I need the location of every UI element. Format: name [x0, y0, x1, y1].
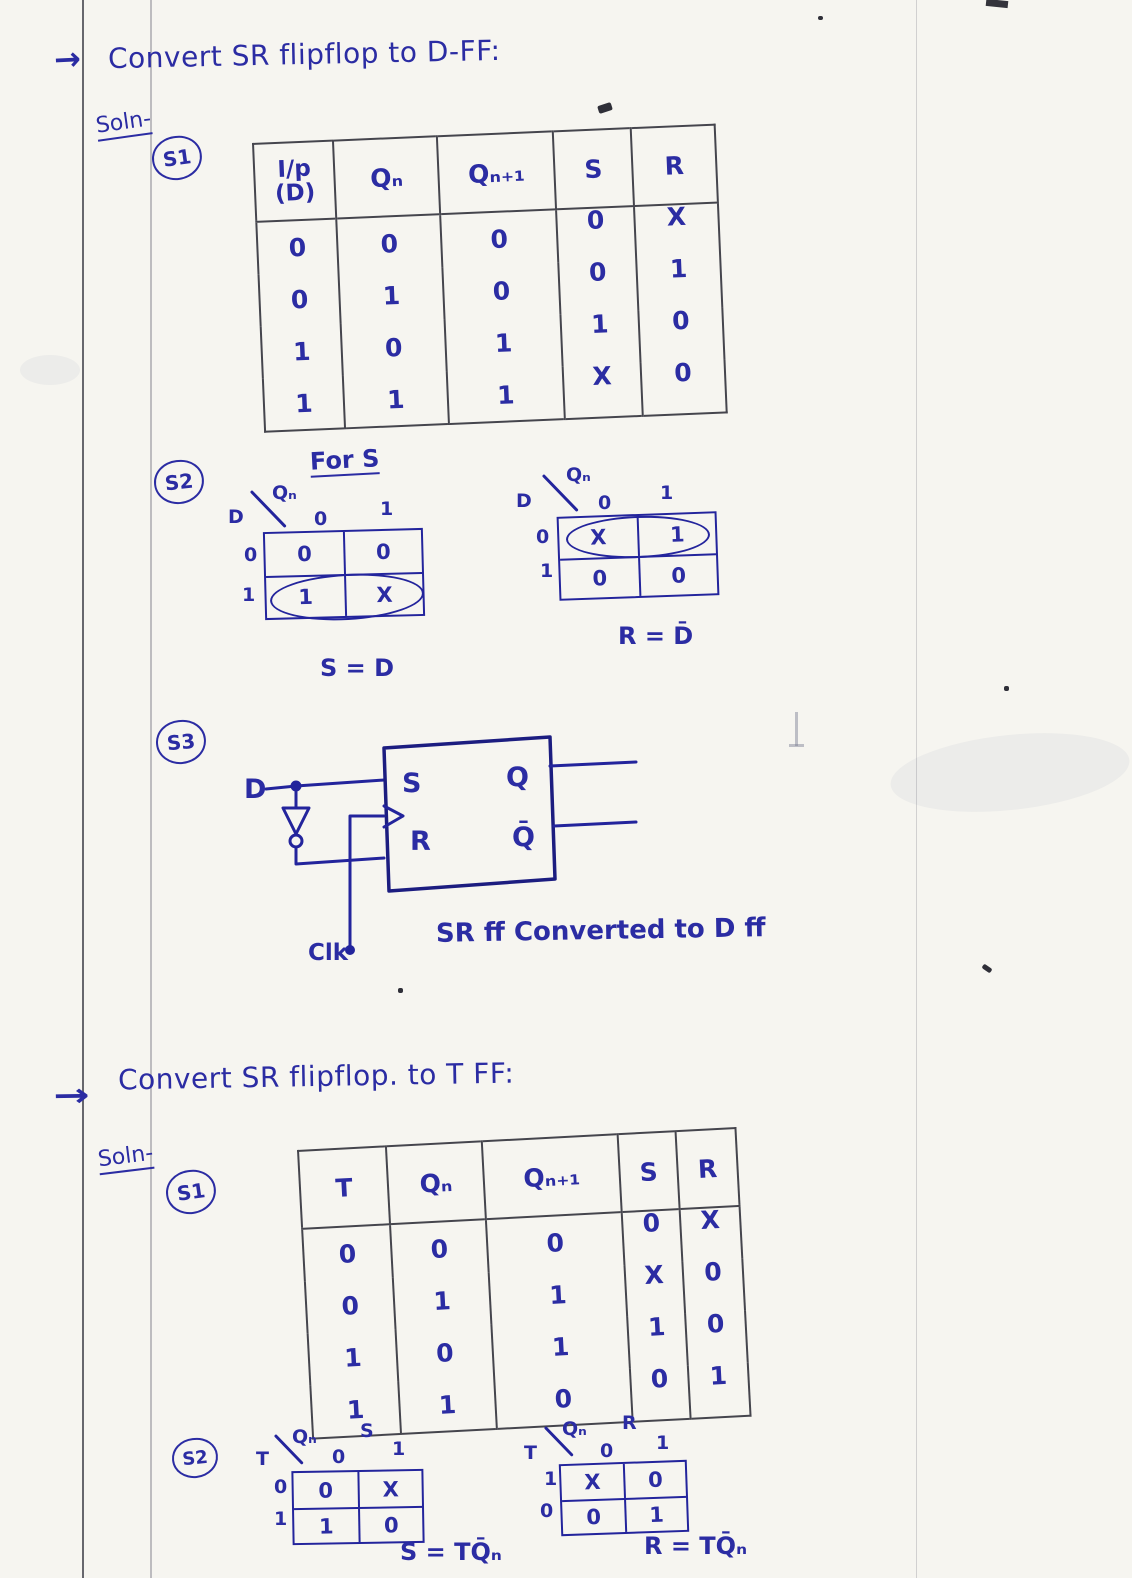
- tff-excitation-table: T Qₙ Qₙ₊₁ S R 0 0 0 0 X 0 1 1: [297, 1127, 752, 1440]
- kmap-s-dff: D Qₙ 0 1 0 1 0 0 1 X S = D: [220, 484, 455, 684]
- kmap-cell: 1: [294, 1507, 359, 1543]
- col-header-qn1: Qₙ₊₁: [482, 1134, 622, 1219]
- kmap-cell: 0: [560, 556, 639, 599]
- cell: 0: [685, 1311, 748, 1366]
- cell: 0: [442, 262, 560, 319]
- cell: 1: [489, 1265, 628, 1324]
- cell: 1: [263, 375, 345, 431]
- kmap-row-label-0: 1: [544, 1468, 557, 1490]
- cell: 0: [390, 1219, 489, 1277]
- kmap-row-label-1: 1: [242, 584, 255, 606]
- cell: 1: [447, 366, 565, 424]
- cell: X: [624, 1262, 685, 1317]
- kmap-colvar: Qₙ: [272, 482, 297, 504]
- kmap-cell: 1: [624, 1496, 687, 1532]
- kmap-col-label-0: 0: [598, 492, 611, 514]
- cell: 0: [259, 271, 341, 326]
- col-header-r: R: [631, 125, 718, 206]
- kmap-row-label-0: 0: [244, 544, 257, 566]
- kmap-cell: X: [357, 1471, 422, 1507]
- kmap-col-label-1: 1: [660, 482, 673, 504]
- inverter-bubble-icon: [290, 835, 302, 847]
- kmap-col-label-1: 1: [656, 1432, 669, 1454]
- cell: 1: [308, 1329, 399, 1386]
- kmap-colvar: Qₙ: [566, 464, 591, 486]
- kmap-cell: 0: [293, 1472, 358, 1508]
- ink-speck: [818, 16, 823, 20]
- kmap-cell: X: [561, 1464, 624, 1500]
- notebook-page: → Convert SR flipflop to D-FF: Soln- S1 …: [0, 0, 1132, 1578]
- q-pin-label: Q: [506, 762, 529, 793]
- step-circle-s1: S1: [163, 1167, 219, 1218]
- qbar-output-wire: [554, 822, 636, 826]
- kmap-col-label-0: 0: [332, 1446, 345, 1468]
- bullet-arrow-icon: →: [53, 1076, 90, 1114]
- kmap-s-tff: T Qₙ 0 1 0 1 0 X 1 0 S = TQ̄ₙ: [246, 1426, 481, 1576]
- col-header-qn: Qₙ: [333, 136, 440, 218]
- clk-label: Clk: [308, 940, 349, 966]
- kmap-cell: 0: [638, 553, 717, 596]
- kmap-cell: 0: [343, 530, 422, 574]
- second-margin-line: [150, 0, 152, 1578]
- s-pin-label: S: [402, 768, 421, 799]
- section-title-dff: Convert SR flipflop to D-FF:: [108, 34, 501, 75]
- scan-smudge: [20, 355, 80, 385]
- kmap-cell: 0: [265, 532, 344, 576]
- cell: 0: [556, 206, 636, 262]
- cell: 1: [445, 314, 563, 371]
- cell: 1: [491, 1317, 630, 1376]
- cell: 0: [341, 319, 447, 375]
- clk-wire: [350, 816, 384, 950]
- kmap-row-label-1: 1: [274, 1508, 287, 1530]
- step-circle-s2: S2: [170, 1436, 220, 1481]
- cell: 1: [261, 323, 343, 378]
- col-header-qn1: Qₙ₊₁: [437, 131, 556, 214]
- section-title-tff: Convert SR flipflop. to T FF:: [118, 1057, 515, 1097]
- r-pin-label: R: [410, 826, 431, 857]
- ink-speck: [981, 964, 992, 974]
- kmap-r-tff: T Qₙ 0 1 1 0 X 0 0 1 R = TQ̄ₙ: [518, 1416, 753, 1576]
- cell: 1: [560, 311, 640, 366]
- kmap-rowvar: D: [228, 506, 244, 528]
- cell: 0: [682, 1259, 745, 1314]
- left-margin-line: [82, 0, 84, 1578]
- solution-label: Soln-: [94, 106, 153, 141]
- kmap-grid: X 0 0 1: [559, 1460, 689, 1536]
- cell: 0: [622, 1209, 683, 1265]
- kmap-result: S = TQ̄ₙ: [400, 1538, 502, 1566]
- corner-ink-mark: [986, 0, 1009, 8]
- kmap-r-dff: D Qₙ 0 1 0 1 X 1 0 0 R = D̄: [510, 464, 745, 664]
- kmap-result: S = D: [320, 654, 394, 682]
- ink-speck: [1004, 686, 1009, 691]
- flipflop-box: [384, 737, 555, 891]
- kmap-rowvar: D: [516, 490, 532, 512]
- step-circle-s2: S2: [152, 458, 206, 507]
- q-output-wire: [550, 762, 636, 766]
- cell: 0: [486, 1212, 625, 1272]
- col-header-s: S: [618, 1131, 680, 1212]
- col-header-input: I/p (D): [253, 141, 336, 222]
- kmap-colvar: Qₙ: [292, 1426, 317, 1448]
- col-header-r: R: [676, 1128, 740, 1209]
- solution-label: Soln-: [97, 1141, 155, 1176]
- cell: X: [563, 363, 643, 419]
- kmap-cell: 0: [358, 1506, 423, 1542]
- kmap-colvar: Qₙ: [562, 1418, 587, 1440]
- d-label: D: [244, 774, 266, 805]
- dff-excitation-table: I/p (D) Qₙ Qₙ₊₁ S R 0 0 0 0 X: [252, 124, 728, 433]
- cell: 0: [440, 209, 558, 267]
- kmap-col-label-0: 0: [600, 1440, 613, 1462]
- kmap-result: R = TQ̄ₙ: [644, 1532, 747, 1560]
- step-circle-s3: S3: [154, 718, 208, 766]
- cell: 0: [396, 1324, 495, 1381]
- qbar-pin-label: Q̄: [512, 820, 535, 853]
- cell: X: [680, 1206, 743, 1262]
- circuit-caption: SR ff Converted to D ff: [436, 913, 766, 949]
- kmap-row-label-1: 0: [540, 1500, 553, 1522]
- cell: 0: [558, 259, 638, 314]
- kmap-result: R = D̄: [618, 622, 693, 650]
- bullet-arrow-icon: →: [53, 39, 82, 78]
- cell: 1: [338, 267, 444, 323]
- inverter-triangle-icon: [283, 808, 309, 834]
- col-header-s: S: [553, 128, 634, 209]
- kmap-cell: 0: [623, 1462, 686, 1498]
- col-header-qn: Qₙ: [386, 1141, 486, 1224]
- cell: 0: [630, 1366, 691, 1422]
- cell: 0: [638, 307, 724, 362]
- kmap-rowvar: T: [524, 1442, 537, 1464]
- kmap-rowvar: T: [256, 1448, 269, 1470]
- col-header-input-top: I/p: [255, 155, 334, 182]
- kmap-col-label-0: 0: [314, 508, 327, 530]
- step-circle-s1: S1: [149, 133, 205, 184]
- kmap-row-label-0: 0: [536, 526, 549, 548]
- kmap-row-label-0: 0: [274, 1476, 287, 1498]
- cell: 0: [302, 1224, 393, 1282]
- kmap-col-label-1: 1: [380, 498, 393, 520]
- cell: 1: [393, 1272, 492, 1329]
- kmap-grid: 0 X 1 0: [291, 1469, 424, 1545]
- kmap-cell: 0: [562, 1498, 625, 1534]
- cell: X: [634, 203, 720, 259]
- kmap-s-caption: For S: [309, 444, 380, 478]
- scan-smudge: [887, 723, 1132, 823]
- col-header-t: T: [298, 1146, 390, 1228]
- cell: 1: [343, 371, 449, 428]
- cell: 1: [688, 1363, 751, 1419]
- cell: 1: [636, 255, 722, 310]
- cell: 1: [627, 1314, 688, 1369]
- kmap-col-label-1: 1: [392, 1438, 405, 1460]
- ink-bleed-mark: [792, 708, 802, 752]
- kmap-row-label-1: 1: [540, 560, 553, 582]
- cell: 0: [641, 359, 727, 415]
- ink-speck: [597, 102, 613, 114]
- cell: 0: [305, 1277, 396, 1334]
- cell: 0: [336, 214, 442, 271]
- col-header-input-bottom: (D): [256, 180, 335, 207]
- d-input-wire: [266, 780, 384, 789]
- r-input-wire: [296, 847, 384, 864]
- cell: 0: [256, 219, 338, 275]
